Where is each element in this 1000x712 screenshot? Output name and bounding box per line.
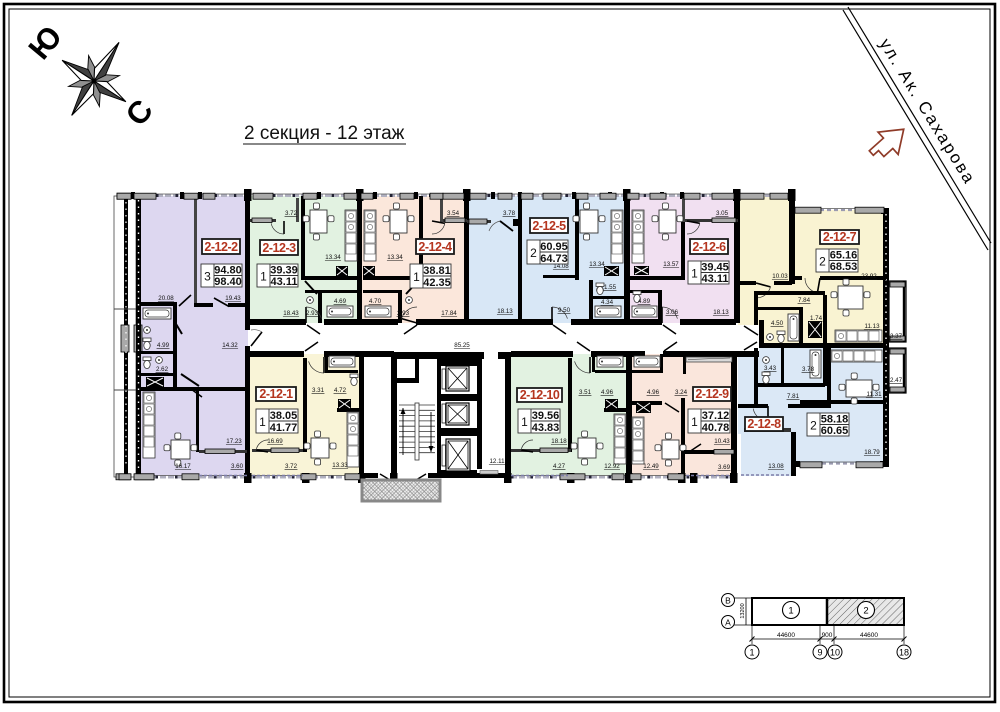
svg-text:3.72: 3.72 xyxy=(285,463,298,470)
svg-text:2-12-7: 2-12-7 xyxy=(823,230,857,244)
svg-text:18.79: 18.79 xyxy=(864,449,880,456)
svg-text:39.56: 39.56 xyxy=(532,410,560,422)
svg-text:60.95: 60.95 xyxy=(540,241,568,253)
svg-text:4.34: 4.34 xyxy=(601,299,614,306)
svg-text:17.84: 17.84 xyxy=(441,310,457,317)
svg-text:В: В xyxy=(725,595,731,605)
svg-text:1: 1 xyxy=(521,415,528,429)
svg-text:2.62: 2.62 xyxy=(156,366,169,373)
svg-text:2: 2 xyxy=(530,246,537,260)
svg-text:85.25: 85.25 xyxy=(454,342,470,349)
svg-text:2-12-1: 2-12-1 xyxy=(259,387,293,401)
svg-text:16.69: 16.69 xyxy=(267,438,283,445)
svg-text:3.51: 3.51 xyxy=(579,389,592,396)
svg-text:4.89: 4.89 xyxy=(638,298,651,305)
svg-text:18: 18 xyxy=(899,648,909,658)
svg-text:18.13: 18.13 xyxy=(713,309,729,316)
svg-text:1: 1 xyxy=(413,270,420,284)
svg-text:1: 1 xyxy=(259,415,266,429)
svg-text:2.47: 2.47 xyxy=(890,377,903,384)
svg-text:13200: 13200 xyxy=(740,603,746,618)
svg-text:1: 1 xyxy=(691,267,698,281)
svg-text:2.93: 2.93 xyxy=(306,310,319,317)
svg-text:3.78: 3.78 xyxy=(503,210,516,217)
svg-text:9.50: 9.50 xyxy=(558,307,571,314)
svg-text:11.31: 11.31 xyxy=(866,391,882,398)
svg-text:2: 2 xyxy=(819,255,826,269)
svg-text:3.06: 3.06 xyxy=(666,309,679,316)
svg-text:1.74: 1.74 xyxy=(810,315,823,322)
svg-text:2-12-4: 2-12-4 xyxy=(418,240,452,254)
svg-text:2.93: 2.93 xyxy=(397,310,410,317)
svg-text:2-12-6: 2-12-6 xyxy=(692,240,726,254)
svg-text:13.57: 13.57 xyxy=(663,261,679,268)
svg-text:98.40: 98.40 xyxy=(214,276,242,288)
svg-text:4.96: 4.96 xyxy=(601,389,614,396)
svg-text:3.60: 3.60 xyxy=(231,463,244,470)
svg-text:4.50: 4.50 xyxy=(771,320,784,327)
svg-text:19.43: 19.43 xyxy=(225,295,241,302)
svg-text:2: 2 xyxy=(810,419,817,433)
svg-text:1.55: 1.55 xyxy=(604,284,617,291)
svg-text:3.24: 3.24 xyxy=(675,389,688,396)
svg-text:2-12-10: 2-12-10 xyxy=(520,388,560,402)
svg-text:13.34: 13.34 xyxy=(589,261,605,268)
svg-text:13.34: 13.34 xyxy=(325,254,341,261)
svg-text:9: 9 xyxy=(817,648,822,658)
svg-text:1: 1 xyxy=(749,648,754,658)
svg-text:12.92: 12.92 xyxy=(604,463,620,470)
svg-text:13.08: 13.08 xyxy=(768,463,784,470)
svg-text:4.70: 4.70 xyxy=(369,298,382,305)
svg-text:2-12-5: 2-12-5 xyxy=(532,219,566,233)
svg-text:2: 2 xyxy=(863,606,868,617)
svg-text:60.65: 60.65 xyxy=(821,425,849,437)
svg-text:1: 1 xyxy=(260,270,267,284)
svg-text:2 секция - 12 этаж: 2 секция - 12 этаж xyxy=(244,123,405,144)
svg-text:3.69: 3.69 xyxy=(718,464,731,471)
svg-text:4.69: 4.69 xyxy=(334,298,347,305)
svg-text:64.73: 64.73 xyxy=(540,253,568,265)
svg-text:18.13: 18.13 xyxy=(497,308,513,315)
svg-text:А: А xyxy=(725,617,731,627)
svg-text:17.23: 17.23 xyxy=(226,438,242,445)
svg-text:12.49: 12.49 xyxy=(643,463,659,470)
svg-text:3.31: 3.31 xyxy=(312,387,325,394)
svg-text:10: 10 xyxy=(830,648,840,658)
svg-text:2-12-2: 2-12-2 xyxy=(204,240,238,254)
svg-text:4.96: 4.96 xyxy=(647,389,660,396)
svg-text:44600: 44600 xyxy=(777,632,795,639)
svg-text:2-12-8: 2-12-8 xyxy=(747,417,781,431)
svg-text:7.84: 7.84 xyxy=(798,297,811,304)
svg-text:3.43: 3.43 xyxy=(764,365,777,372)
svg-text:3: 3 xyxy=(204,270,211,284)
svg-text:43.83: 43.83 xyxy=(532,422,560,434)
svg-text:43.11: 43.11 xyxy=(702,273,729,285)
svg-text:10.43: 10.43 xyxy=(714,438,730,445)
svg-text:43.11: 43.11 xyxy=(271,276,298,288)
svg-text:40.78: 40.78 xyxy=(702,422,730,434)
svg-text:16.17: 16.17 xyxy=(175,463,191,470)
svg-text:3.37: 3.37 xyxy=(890,333,903,340)
svg-text:2-12-3: 2-12-3 xyxy=(262,241,296,255)
svg-text:11.13: 11.13 xyxy=(864,323,880,330)
svg-text:1: 1 xyxy=(691,415,698,429)
svg-text:3.54: 3.54 xyxy=(447,210,460,217)
svg-text:37.12: 37.12 xyxy=(702,410,730,422)
svg-text:68.53: 68.53 xyxy=(830,261,858,273)
svg-text:4.99: 4.99 xyxy=(157,342,170,349)
svg-text:4.27: 4.27 xyxy=(553,463,566,470)
svg-text:20.08: 20.08 xyxy=(158,295,174,302)
svg-text:900: 900 xyxy=(822,632,833,639)
svg-text:3.72: 3.72 xyxy=(285,210,298,217)
svg-text:3.78: 3.78 xyxy=(802,366,815,373)
svg-text:44600: 44600 xyxy=(860,632,878,639)
svg-text:3.05: 3.05 xyxy=(716,210,729,217)
svg-text:18.43: 18.43 xyxy=(283,310,299,317)
svg-text:14.32: 14.32 xyxy=(222,342,238,349)
svg-text:12.11: 12.11 xyxy=(489,458,505,465)
svg-text:41.77: 41.77 xyxy=(270,422,298,434)
svg-text:2-12-9: 2-12-9 xyxy=(695,387,729,401)
svg-text:38.05: 38.05 xyxy=(270,410,298,422)
svg-text:23.92: 23.92 xyxy=(861,273,877,280)
svg-text:13.33: 13.33 xyxy=(332,462,348,469)
svg-text:7.81: 7.81 xyxy=(787,393,800,400)
svg-text:42.35: 42.35 xyxy=(423,277,451,289)
svg-text:13.34: 13.34 xyxy=(387,254,403,261)
svg-text:4.72: 4.72 xyxy=(334,387,347,394)
svg-text:18.18: 18.18 xyxy=(551,438,567,445)
svg-text:1: 1 xyxy=(788,606,793,617)
svg-text:38.81: 38.81 xyxy=(423,265,451,277)
svg-text:10.03: 10.03 xyxy=(772,273,788,280)
